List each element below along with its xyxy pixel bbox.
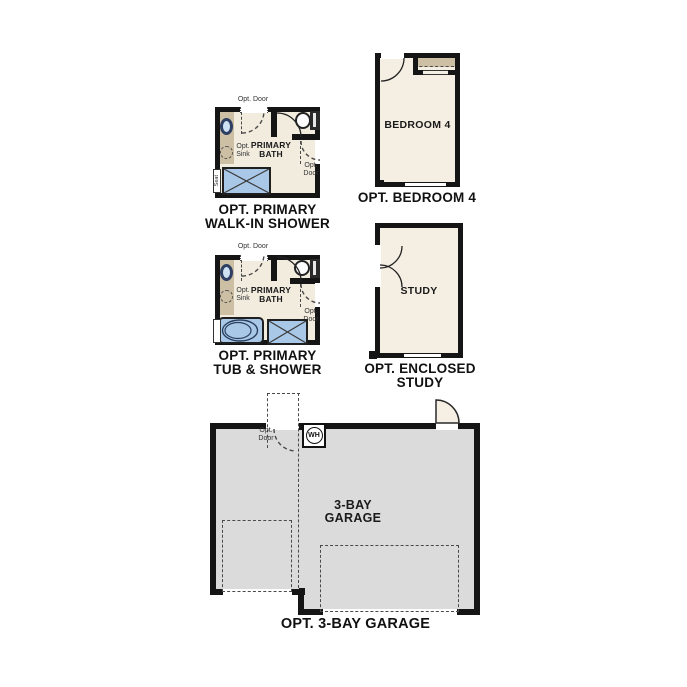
window bbox=[213, 319, 221, 343]
double-bay-dashed bbox=[320, 545, 459, 612]
opt-door-leaf-dashed bbox=[300, 284, 301, 307]
opt-door-label: Door bbox=[246, 435, 286, 442]
closet-opening bbox=[423, 70, 448, 75]
room-label: STUDY bbox=[375, 286, 463, 297]
opt-door-opening bbox=[240, 107, 268, 113]
double-door-opening bbox=[375, 245, 381, 287]
window bbox=[405, 182, 446, 187]
opt-door-side-label: Opt. bbox=[298, 162, 324, 169]
room-label: BATH bbox=[240, 150, 302, 159]
floorplan-options-sheet: Opt. Door Opt. Sink PRIMARY BATH Opt. Do… bbox=[0, 0, 687, 687]
opt-door-top-label: Opt. Door bbox=[228, 243, 278, 250]
toilet-compartment-wall bbox=[271, 260, 277, 281]
door-opening bbox=[381, 53, 404, 59]
room-label: GARAGE bbox=[303, 512, 403, 525]
water-heater-label: WH bbox=[306, 427, 323, 444]
plan-caption: WALK-IN SHOWER bbox=[190, 217, 345, 231]
walk-in-shower-pan bbox=[222, 167, 271, 195]
toilet-compartment-wall bbox=[271, 112, 277, 137]
plan-caption: OPT. 3-BAY GARAGE bbox=[258, 617, 453, 631]
plan-caption: TUB & SHOWER bbox=[190, 363, 345, 377]
sink bbox=[220, 118, 233, 135]
third-bay-divider-dashed bbox=[298, 393, 299, 588]
third-bay-dashed bbox=[222, 520, 292, 592]
shower-pan bbox=[267, 319, 308, 345]
opt-door-opening bbox=[240, 255, 268, 261]
opt-door-chase-dashed bbox=[267, 393, 300, 394]
toilet-tank bbox=[310, 111, 320, 130]
wall-post bbox=[369, 351, 377, 359]
plan-caption: STUDY bbox=[355, 376, 485, 390]
toilet-tank bbox=[310, 259, 320, 278]
opt-door-leaf-dashed bbox=[241, 260, 242, 281]
window bbox=[404, 353, 441, 358]
toilet bbox=[294, 260, 310, 276]
wall-post bbox=[376, 180, 384, 187]
opt-door-top-label: Opt. Door bbox=[228, 96, 278, 103]
seat-label: Seat bbox=[214, 175, 220, 186]
plan-caption: OPT. BEDROOM 4 bbox=[352, 191, 482, 205]
room-label: BEDROOM 4 bbox=[375, 120, 460, 131]
room-label: BATH bbox=[240, 295, 302, 304]
entry-door-leaf bbox=[436, 400, 459, 423]
closet-rod-dashed bbox=[414, 66, 454, 67]
opt-door-leaf-dashed bbox=[241, 112, 242, 134]
opt-door-side-label: Opt. bbox=[298, 308, 324, 315]
opt-door-side-label: Door bbox=[298, 170, 324, 177]
sink bbox=[220, 264, 233, 281]
entry-door-opening bbox=[436, 423, 458, 430]
toilet bbox=[295, 112, 311, 129]
water-heater: WH bbox=[302, 423, 326, 448]
opt-door-leaf-dashed bbox=[300, 141, 301, 164]
opt-door-label: Opt. bbox=[246, 427, 286, 434]
bathtub bbox=[218, 317, 264, 344]
opt-door-opening bbox=[315, 283, 320, 307]
shower-seat: Seat bbox=[213, 169, 221, 193]
opt-door-opening bbox=[315, 140, 320, 164]
